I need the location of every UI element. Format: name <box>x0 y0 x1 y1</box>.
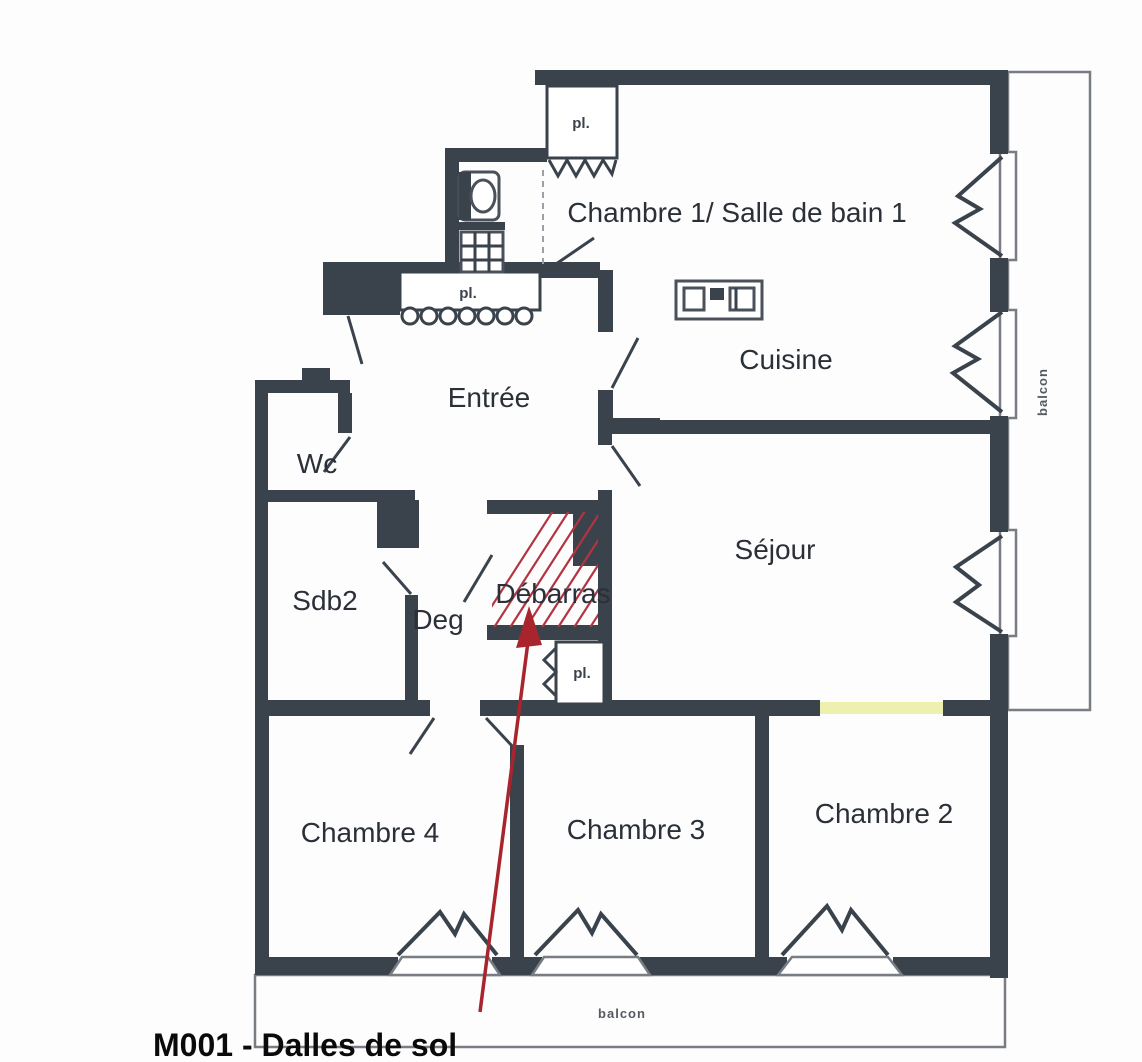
debarras-door-icon <box>464 555 492 602</box>
sejour-door-icon <box>612 446 640 486</box>
chambre4-door-icon <box>410 718 434 754</box>
room-label-sdb2: Sdb2 <box>292 585 357 616</box>
room-label-chambre2: Chambre 2 <box>815 798 954 829</box>
toilet-icon <box>459 172 499 220</box>
window-icon <box>955 157 1002 256</box>
sink-icon <box>461 232 503 272</box>
balcony-right: balcon <box>1000 72 1090 710</box>
entrance-door-icon <box>348 316 362 364</box>
cuisine-door-icon <box>612 338 638 388</box>
chambre1-closet-label: pl. <box>572 115 590 132</box>
room-label-debarras: Débarras <box>495 578 610 609</box>
window-icon <box>782 906 888 955</box>
room-label-chambre4: Chambre 4 <box>301 817 440 848</box>
hatched-area <box>470 500 672 640</box>
chambre3-door-icon <box>486 718 514 748</box>
entree-closet-label: pl. <box>459 285 477 302</box>
room-label-sejour: Séjour <box>735 534 816 565</box>
window-icon <box>956 536 1002 632</box>
balcony-right-label: balcon <box>1035 368 1050 416</box>
window-icon <box>953 312 1002 412</box>
room-label-chambre3: Chambre 3 <box>567 814 706 845</box>
sdb2-door-icon <box>383 562 411 594</box>
window-icon <box>398 912 497 955</box>
yellow-door-marker <box>820 702 943 714</box>
chambre1-door-icon <box>556 238 594 264</box>
debarras-closet-label: pl. <box>573 665 591 682</box>
floor-plan: balcon balcon <box>0 0 1142 1062</box>
room-label-entree: Entrée <box>448 382 531 413</box>
floor-plan-drawing: balcon balcon <box>0 0 1142 1062</box>
room-label-wc: Wc <box>297 448 337 479</box>
balcony-bottom-label: balcon <box>598 1006 646 1021</box>
room-label-cuisine: Cuisine <box>739 344 832 375</box>
stove-icon <box>676 281 762 319</box>
debarras-highlight <box>470 500 672 1012</box>
window-icon <box>535 910 637 955</box>
room-label-deg: Deg <box>412 604 463 635</box>
room-label-chambre1: Chambre 1/ Salle de bain 1 <box>567 197 906 228</box>
caption: M001 - Dalles de sol <box>153 1027 457 1062</box>
